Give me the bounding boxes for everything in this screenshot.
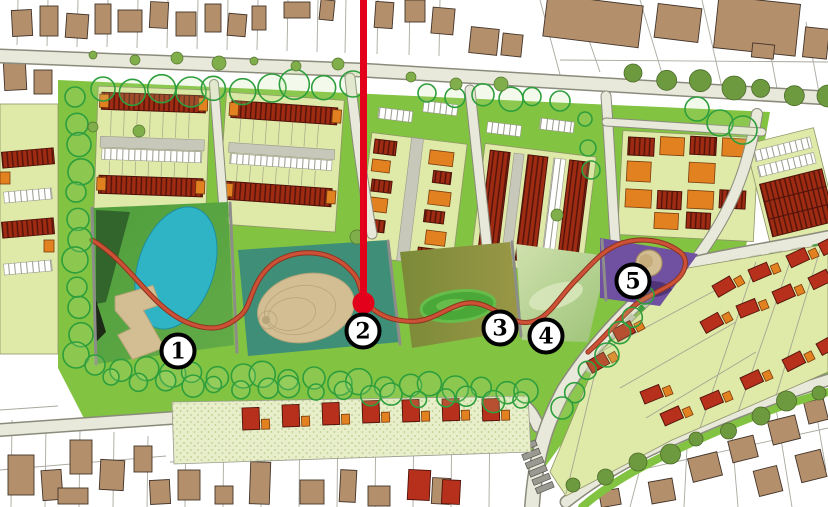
masterplan-map: 12345	[0, 0, 828, 507]
map-marker-5[interactable]: 5	[617, 265, 650, 298]
map-marker-3[interactable]: 3	[484, 312, 517, 345]
marker-number: 3	[492, 316, 507, 342]
park-1-pond	[92, 196, 234, 364]
left-edge-block	[0, 104, 58, 354]
pointer-dot	[353, 292, 375, 314]
map-marker-1[interactable]: 1	[162, 335, 195, 368]
map-marker-2[interactable]: 2	[347, 315, 380, 348]
marker-number: 4	[538, 324, 553, 350]
marker-number: 5	[625, 269, 640, 295]
bottom-gardens	[172, 396, 531, 464]
map-marker-4[interactable]: 4	[530, 320, 563, 353]
map-canvas: 12345	[0, 0, 828, 507]
housing-block-b	[217, 92, 344, 232]
marker-number: 1	[170, 339, 185, 365]
marker-number: 2	[355, 319, 370, 345]
